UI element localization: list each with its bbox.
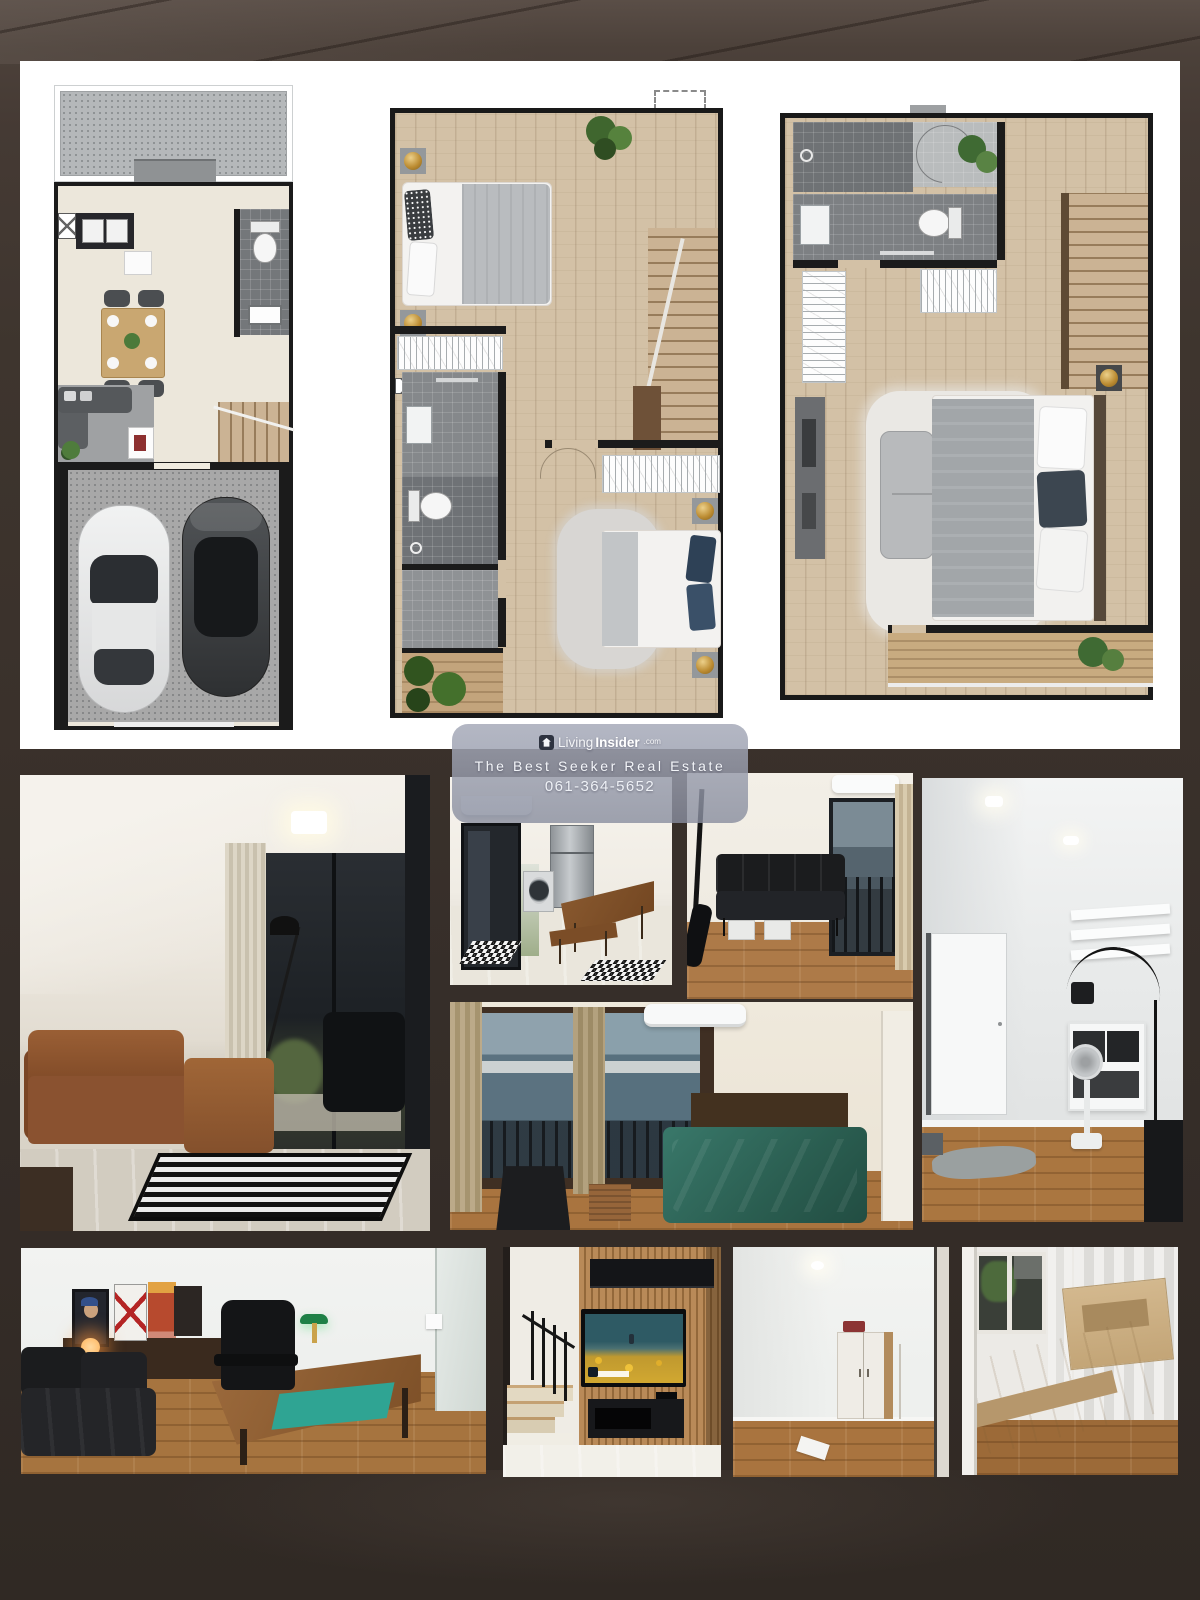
wardrobe <box>602 455 720 493</box>
floor-plant <box>62 441 80 459</box>
arc-lamp-pole <box>1154 1000 1157 1124</box>
stair-step <box>507 1385 572 1401</box>
entry-door-gap <box>154 463 210 469</box>
lamp <box>404 152 422 170</box>
built-in-closet <box>920 269 997 313</box>
toilet-bowl <box>918 209 950 237</box>
brand-name-suffix: .com <box>644 733 661 752</box>
plate <box>107 315 119 327</box>
glossy-floor <box>503 1445 721 1477</box>
bed-fold-highlight <box>672 1139 857 1212</box>
toilet-tank <box>250 221 280 233</box>
bed3-pillow <box>1036 406 1087 470</box>
plate <box>145 357 157 369</box>
dining-chair <box>138 290 164 307</box>
photo-master-bedroom <box>450 1002 913 1230</box>
house-logo-icon <box>539 735 554 750</box>
day-bed-leg <box>836 918 838 936</box>
poster-red-x <box>114 1284 147 1341</box>
fridge <box>550 825 594 908</box>
sunflower-dot <box>656 1360 662 1366</box>
wall <box>793 260 997 268</box>
door-frame <box>934 1247 949 1477</box>
glass-partition <box>435 1248 486 1411</box>
wardrobe-side-panel <box>884 1332 893 1419</box>
flyer-canvas: LivingInsider.com The Best Seeker Real E… <box>0 0 1200 1600</box>
desk-leg <box>402 1388 408 1438</box>
floorplan-third-floor <box>780 113 1153 700</box>
plate <box>145 315 157 327</box>
floorplan-second-floor <box>390 90 723 718</box>
wardrobe <box>802 271 846 383</box>
wall <box>498 372 506 647</box>
wc-window <box>248 305 282 325</box>
car-dark-hood-light <box>190 503 262 531</box>
poster-orange <box>148 1282 176 1339</box>
sofa-pillow <box>64 391 76 401</box>
balcony-plant <box>1102 649 1124 671</box>
day-bed-seat <box>716 891 845 920</box>
bed2-pillow <box>686 583 716 631</box>
console-slot <box>595 1408 652 1429</box>
photo-wardrobe-room <box>733 1247 949 1477</box>
sofa-chaise <box>184 1058 274 1154</box>
balcony-plant <box>406 688 430 712</box>
kitchen-sink-left <box>82 219 104 243</box>
brand-logo-row: LivingInsider.com <box>452 733 748 752</box>
toilet-bowl <box>253 233 277 263</box>
kitchen-cabinet <box>124 251 152 275</box>
vestibule <box>402 570 498 648</box>
brand-phone: 061-364-5652 <box>452 778 748 795</box>
garage-wall-left <box>54 470 68 730</box>
magazine <box>134 435 146 451</box>
window-house-edge <box>1014 1256 1042 1279</box>
wall <box>997 122 1005 260</box>
side-table <box>20 1167 73 1231</box>
car-white-roof <box>92 603 156 651</box>
toilet-tank <box>948 207 962 239</box>
sunflower-dot <box>595 1357 602 1364</box>
brand-watermark: LivingInsider.com The Best Seeker Real E… <box>452 724 748 823</box>
poster-dark <box>174 1286 202 1336</box>
lamp <box>1100 369 1118 387</box>
wall-shelf <box>1071 903 1171 920</box>
stairs <box>1069 193 1148 389</box>
floorplan-ground-floor <box>54 85 293 730</box>
arc-lamp-shade <box>1071 982 1094 1004</box>
window-mullion <box>1007 1252 1011 1334</box>
balcony-plant <box>404 656 434 686</box>
day-bed-leg <box>723 918 725 936</box>
door-frame <box>881 1011 913 1221</box>
curtain <box>895 784 913 969</box>
bed1-pillow-white <box>406 241 438 297</box>
love-seat <box>880 431 934 559</box>
towel-rail <box>880 251 934 255</box>
stand-fan-base <box>1071 1133 1102 1149</box>
brand-name-bold: Insider <box>595 734 639 751</box>
tv-cabinet <box>1144 1120 1183 1222</box>
day-bed-back <box>716 854 845 895</box>
floor-lamp-shade <box>496 1166 570 1230</box>
dark-mat <box>922 1133 943 1155</box>
car-white-rear-glass <box>94 649 154 685</box>
bankers-lamp-stem <box>312 1323 317 1343</box>
bed3-pillow <box>1035 527 1088 593</box>
desk-leg <box>240 1429 247 1465</box>
ceiling-light <box>811 1261 824 1270</box>
red-bag-on-top <box>843 1321 865 1333</box>
stair-step <box>507 1417 555 1433</box>
brand-tagline: The Best Seeker Real Estate <box>452 758 748 774</box>
photo-living-room <box>20 775 430 1231</box>
entry-plant <box>976 151 998 173</box>
office-chair-arm <box>214 1354 298 1365</box>
office-chair <box>221 1300 295 1390</box>
stair-rail <box>1061 193 1069 389</box>
ceiling-light <box>1063 836 1079 845</box>
plate <box>107 357 119 369</box>
checkered-runner <box>580 960 666 981</box>
utility-box <box>58 213 76 239</box>
curtain <box>450 1002 482 1212</box>
garage-wall-right <box>279 470 293 730</box>
photo-home-office <box>21 1248 486 1474</box>
railing-top <box>522 1314 575 1349</box>
terrace-step <box>134 159 216 182</box>
table-leg <box>641 906 643 939</box>
background-carpet-sheen <box>0 1470 1200 1600</box>
stand-fan-head <box>1068 1044 1103 1080</box>
wardrobe-door-line <box>863 1332 864 1419</box>
bathroom-mirror <box>436 378 478 382</box>
washer-door <box>529 877 549 904</box>
wc-sink <box>800 205 830 245</box>
under-bed-storage <box>728 920 755 940</box>
background-cables <box>0 0 1200 64</box>
console-top <box>590 1259 714 1289</box>
car-white-windshield <box>90 555 158 605</box>
toilet-tank <box>408 490 420 522</box>
bed3-pillow-dark <box>1037 470 1088 528</box>
stair-step <box>507 1401 564 1417</box>
lamp <box>696 502 714 520</box>
vermeer-scarf <box>81 1297 97 1306</box>
outdoor-car <box>323 1012 405 1112</box>
toilet-bowl <box>420 492 452 520</box>
roof-dashed-box <box>654 90 706 110</box>
dining-chair <box>104 290 130 307</box>
brand-name-light: Living <box>558 734 593 751</box>
balcony-rail <box>888 683 1153 687</box>
sofa-pillow <box>80 391 92 401</box>
tv-person <box>629 1334 634 1344</box>
black-sofa-seat <box>21 1388 156 1456</box>
table-plant <box>124 333 140 349</box>
photo-wooden-bed-room <box>962 1247 1178 1475</box>
floor-lamp-shade <box>270 916 299 934</box>
wardrobe-handle <box>859 1369 861 1377</box>
wardrobe <box>397 336 503 370</box>
console-item <box>656 1392 678 1399</box>
wood-stool <box>589 1184 631 1220</box>
lamp <box>696 656 714 674</box>
townhouse-band <box>589 1061 700 1072</box>
photo-dressing-room <box>922 778 1183 1222</box>
balcony-plant <box>432 672 466 706</box>
door-gap <box>838 260 880 268</box>
patterned-rug <box>128 1153 413 1221</box>
bed2-pillow <box>685 535 716 584</box>
curtain <box>573 1007 605 1194</box>
photo-tv-wall-stairs <box>503 1247 721 1477</box>
sofa-seat <box>28 1076 208 1144</box>
shower-head <box>410 542 422 554</box>
floorplan-panel <box>20 61 1180 749</box>
love-seat-cushion-line <box>892 493 932 495</box>
kitchen-sink-right <box>106 219 128 243</box>
ceiling-light <box>985 796 1003 807</box>
door-frame <box>962 1247 977 1475</box>
door-gap <box>892 625 926 633</box>
door-gap <box>552 440 598 448</box>
bathroom-sink <box>406 406 432 444</box>
wall <box>888 625 1153 633</box>
car-dark-glass <box>194 537 258 637</box>
door-knob <box>998 1022 1002 1026</box>
sliding-door-glass <box>468 831 490 956</box>
shower-head <box>800 149 813 162</box>
under-bed-storage <box>764 920 791 940</box>
coat-stand <box>899 1344 901 1420</box>
plant <box>594 138 616 160</box>
wall-shelf <box>1071 923 1171 940</box>
bed2-duvet <box>602 532 638 646</box>
ac-unit <box>832 775 900 793</box>
sideboard-items <box>802 493 816 529</box>
bench-leg <box>559 939 561 964</box>
wood-floor <box>733 1420 949 1478</box>
bed1-duvet <box>462 184 550 304</box>
tv-logo <box>588 1367 598 1377</box>
door <box>931 933 1007 1115</box>
bench-leg <box>605 931 607 956</box>
door-gap <box>498 560 506 598</box>
bed1-pillow-patterned <box>404 189 434 241</box>
stand-fan-pole <box>1084 1080 1091 1133</box>
wardrobe-handle <box>867 1369 869 1377</box>
bed3-duvet <box>932 399 1034 617</box>
ceiling-light <box>291 811 328 834</box>
sideboard-items <box>802 419 816 467</box>
garage-gate <box>114 722 234 727</box>
ac-unit <box>644 1004 746 1027</box>
headboard <box>1094 395 1106 621</box>
fridge-divider <box>550 852 594 854</box>
wall <box>390 326 506 334</box>
light-switch <box>426 1314 442 1330</box>
